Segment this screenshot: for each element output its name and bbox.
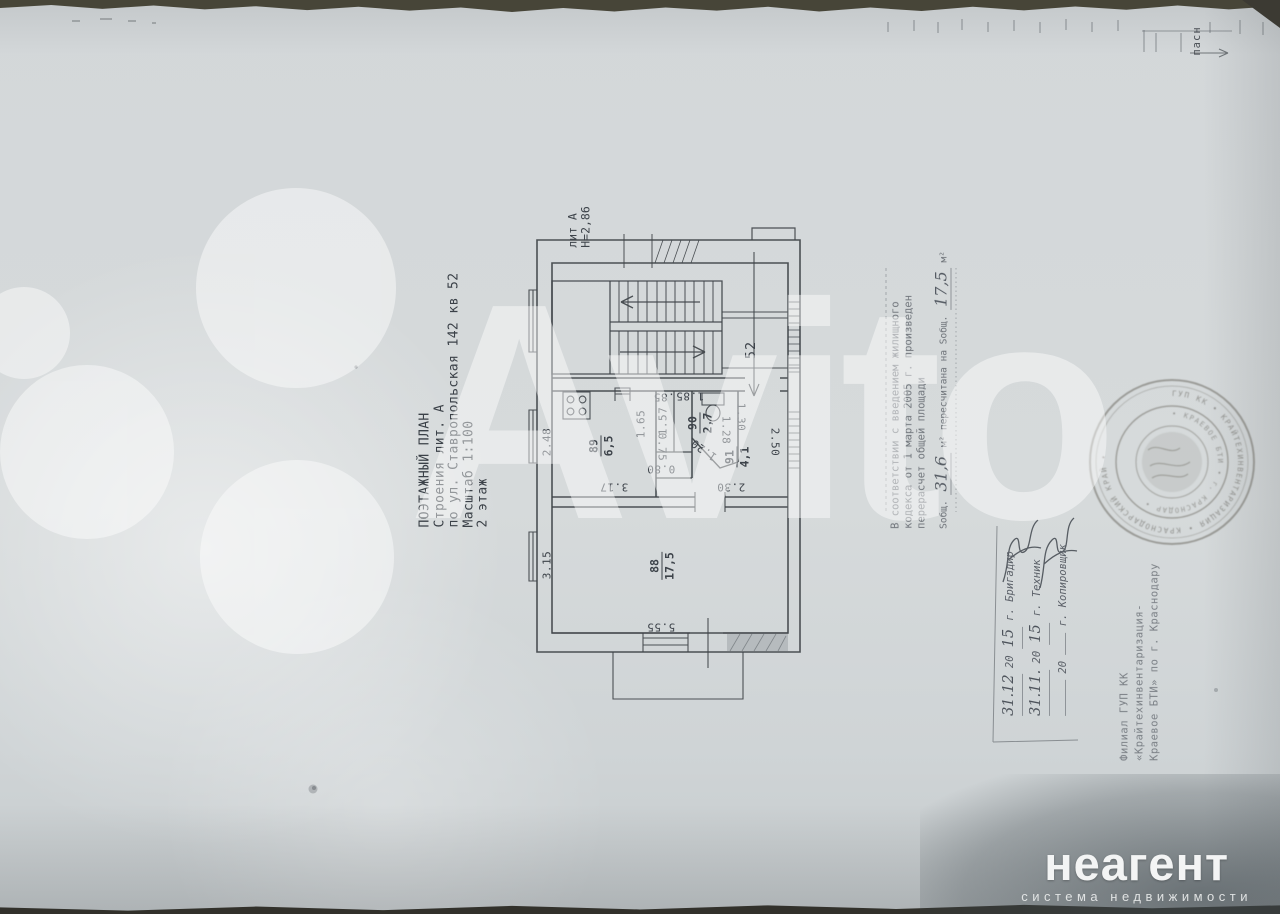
title-line: Масштаб 1:100 [462,272,477,527]
s-total-label: Sобщ. [939,500,950,529]
room-number: 89 [588,436,602,457]
room-number: 91 [724,447,738,468]
recalc-line: перерасчет общей площади [916,251,929,529]
neagent-logo: неагент система недвижимости [1021,841,1252,904]
recalc-line: В соответствии с введением жилищного [890,251,903,529]
year-prefix: 20 [1031,651,1043,664]
neagent-tagline: система недвижимости [1021,889,1252,904]
date-value: 31.11. [1023,670,1050,716]
role-label: г. Бригадир [1004,551,1016,621]
stair-arrow-down [620,346,705,358]
signature-row: 31.11. 20 15 г. Техник [1023,544,1050,716]
area-before-value: 31,6 [932,453,952,495]
staircase [552,240,800,468]
year-prefix: 20 [1004,655,1016,668]
year-value [1065,633,1066,655]
stair-arrow-up [621,296,700,308]
signature-row: 31.12 20 15 г. Бригадир [996,544,1023,716]
recalc-line: кодекса от 1 марта 2005 г. произведен [903,251,916,529]
year-value: 15 [996,627,1023,649]
apartment-pointer-arrow [749,252,759,396]
stove-icon [563,392,590,419]
recalc-values-line: Sобщ. 31,6 м² пересчитана на Sобщ. 17,5 … [935,251,951,529]
area-after-value: 17,5 [932,268,952,310]
date-value [1065,680,1066,716]
hatched-wall [727,634,788,651]
neagent-wordmark: неагент [1021,841,1252,887]
room-number: 90 [687,413,701,434]
title-line: по ул. Ставропольская 142 кв 52 [448,272,463,527]
floor-plan-drawing: ГУП КК • КРАЙТЕХИНВЕНТАРИЗАЦИЯ • КРАСНОД… [0,0,1280,914]
room-area: 4,1 [738,447,751,468]
room-area: 17,5 [663,552,676,580]
date-value: 31.12 [996,674,1023,716]
room-area: 2,7 [701,413,714,434]
title-line: ПОЭТАЖНЫЙ ПЛАН [419,272,434,527]
year-value: 15 [1023,622,1050,644]
signature-row: 20 г. Копировщик [1050,544,1076,716]
room-number: 88 [649,552,663,580]
bti-line: «Крайтехинвентаризация- [1133,563,1148,761]
title-line: 2 этаж [477,272,492,527]
role-label: г. Копировщик [1057,544,1069,626]
ruler-ticks [72,19,1263,57]
liter-label: лит А [567,206,580,248]
role-label: г. Техник [1031,559,1043,616]
round-seal: ГУП КК • КРАЙТЕХИНВЕНТАРИЗАЦИЯ • КРАСНОД… [1090,380,1254,544]
title-line: Строения лит. А [433,272,448,527]
unit-label: м² [939,251,950,262]
year-prefix: 20 [1057,661,1069,674]
bti-line: Краевое БТИ» по г. Краснодару [1148,563,1163,761]
bti-line: Филиал ГУП КК [1118,563,1133,761]
room-area: 6,5 [602,436,615,457]
ceiling-height-label: Н=2,86 [579,206,592,248]
sink-icon [615,388,630,401]
recalc-mid-label: м² пересчитана на Sобщ. [939,316,950,448]
scanned-floor-plan-photo: ГУП КК • КРАЙТЕХИНВЕНТАРИЗАЦИЯ • КРАСНОД… [0,0,1280,914]
